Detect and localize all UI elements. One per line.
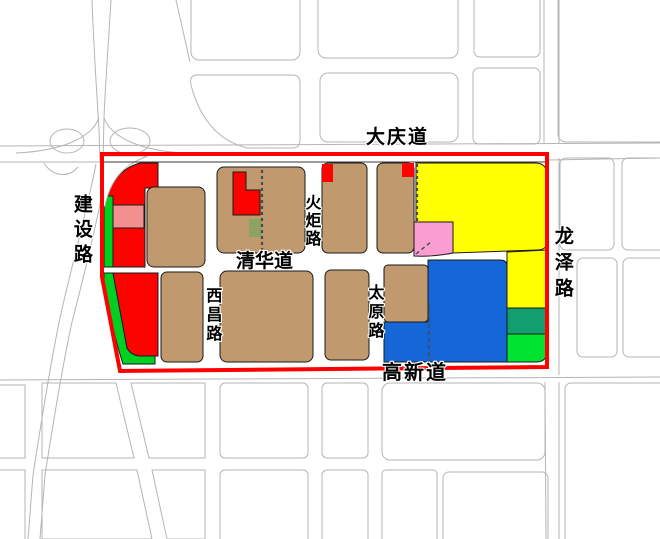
road-label-taiyuan: 太原路 — [364, 284, 382, 341]
bg-block — [565, 383, 660, 539]
bg-block — [131, 383, 205, 458]
parcel-tan — [217, 167, 305, 253]
bg-block — [191, 0, 300, 60]
parcel-tan — [384, 265, 428, 322]
road-label-jianshe: 建设路 — [70, 194, 92, 269]
parcel-red-patch — [402, 163, 414, 177]
bg-block — [623, 258, 660, 357]
bg-block — [474, 0, 540, 57]
gaoxin-road-edge — [0, 377, 660, 380]
cloverleaf-loop — [50, 129, 84, 153]
bg-block — [191, 75, 300, 148]
bg-block — [152, 470, 205, 539]
parcel-yellow-small — [507, 250, 547, 308]
parcel-teal — [507, 308, 547, 334]
parcel-lime — [507, 334, 547, 362]
parcel-pink — [414, 222, 453, 256]
bg-block — [577, 258, 617, 357]
parcel-tan — [325, 270, 369, 360]
bg-block — [220, 383, 308, 458]
parcel-olive-patch — [249, 219, 262, 237]
parcel-tan — [220, 271, 313, 362]
bg-block — [42, 470, 152, 539]
bg-block — [443, 472, 548, 539]
ramp-edge — [176, 0, 190, 62]
bg-block — [322, 383, 368, 458]
cloverleaf-loop — [110, 128, 150, 154]
parcel-tan — [147, 187, 205, 267]
bg-block — [42, 383, 134, 458]
parcel-green-strip-top — [104, 196, 113, 267]
parcels — [103, 156, 547, 364]
bg-block — [0, 470, 25, 539]
road-label-daqing: 大庆道 — [366, 127, 429, 149]
parcel-tan — [161, 272, 203, 362]
bg-block — [558, 0, 660, 142]
bg-block — [382, 383, 545, 460]
road-label-gaoxin: 高新道 — [382, 362, 448, 385]
road-label-xichang: 西昌路 — [202, 287, 220, 344]
road-label-longze: 龙泽路 — [551, 226, 573, 304]
planning-map: 大庆道 高新道 清华道 建设路 龙泽路 火炬路 西昌路 太原路 — [0, 0, 660, 539]
parcel-red-patch — [322, 164, 333, 182]
road-label-huoju: 火炬路 — [301, 194, 319, 248]
bg-block — [322, 470, 368, 539]
bg-block — [0, 385, 25, 458]
bg-block — [318, 0, 458, 58]
road-label-qinghua: 清华道 — [236, 251, 293, 273]
parcel-salmon-patch — [113, 205, 144, 228]
bg-block — [220, 470, 308, 539]
bg-block — [382, 470, 437, 539]
bg-block — [622, 158, 660, 250]
bg-block — [473, 68, 540, 144]
